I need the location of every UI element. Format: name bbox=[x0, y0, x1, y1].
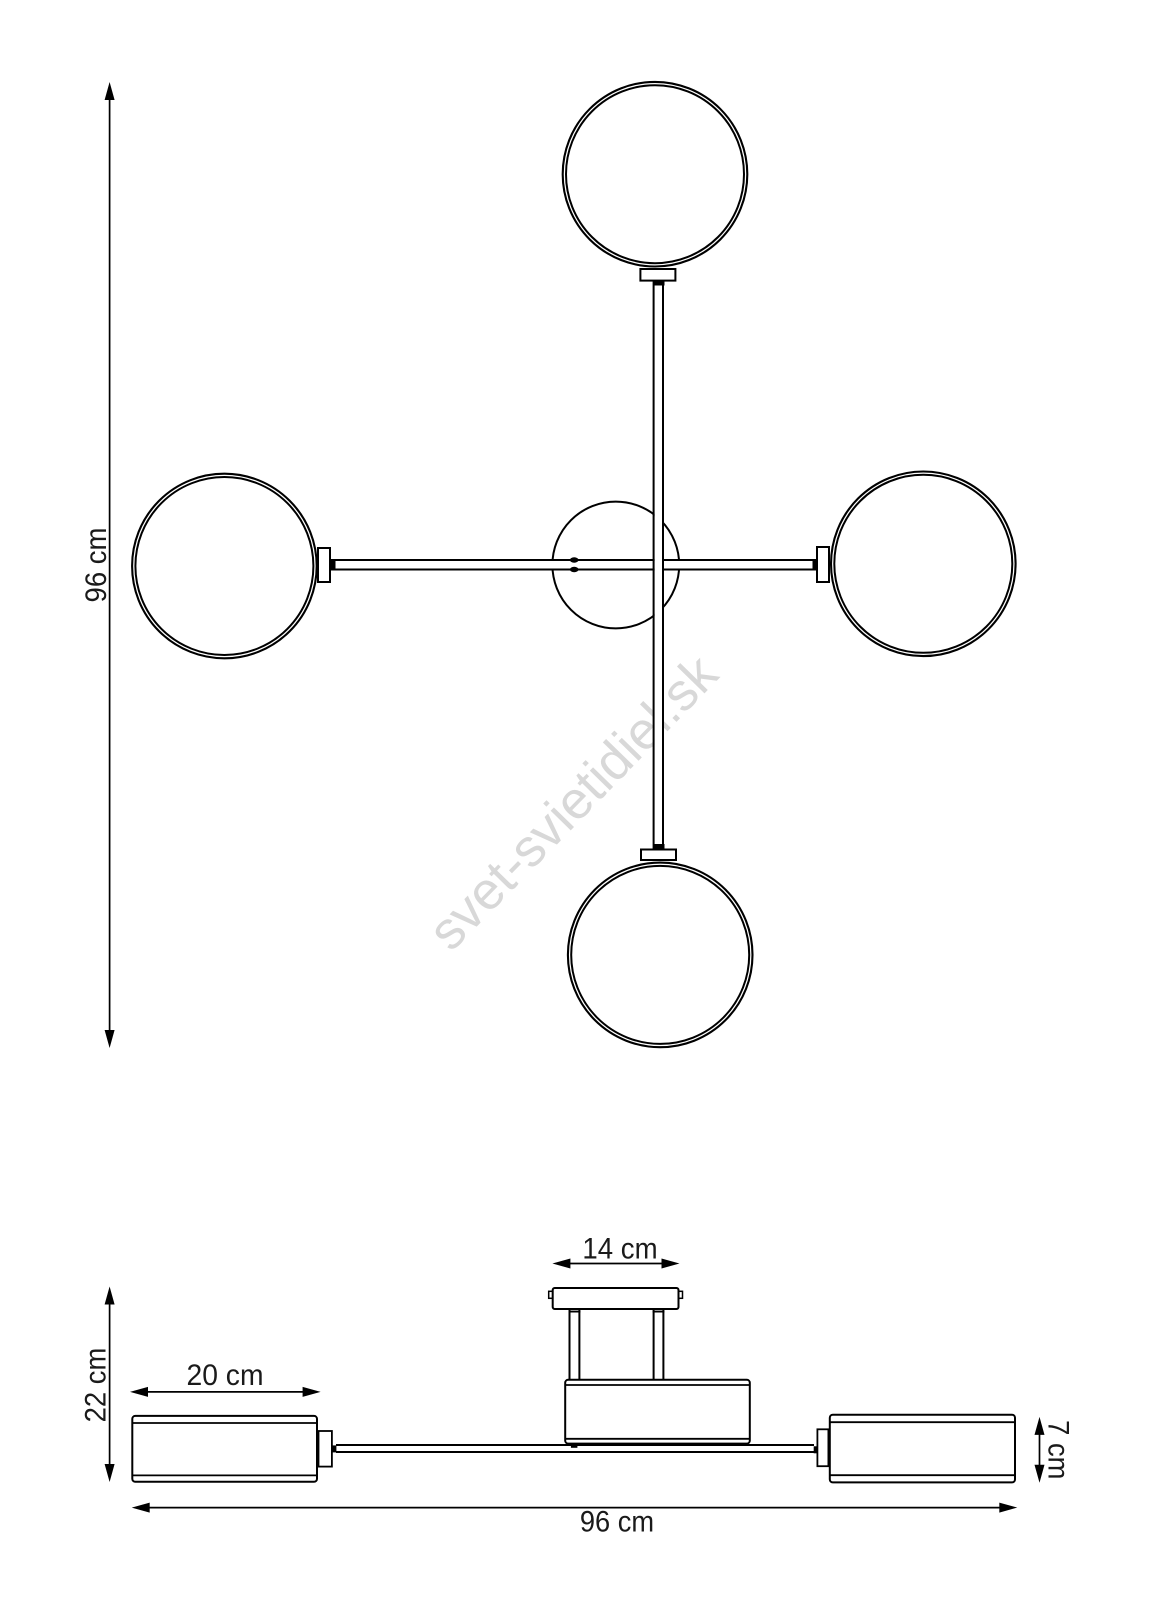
svg-text:22 cm: 22 cm bbox=[80, 1348, 113, 1423]
svg-text:20 cm: 20 cm bbox=[187, 1359, 264, 1392]
svg-text:14 cm: 14 cm bbox=[582, 1233, 657, 1266]
svg-text:96 cm: 96 cm bbox=[80, 528, 113, 603]
svg-text:7 cm: 7 cm bbox=[1042, 1420, 1075, 1479]
svg-text:96 cm: 96 cm bbox=[580, 1506, 654, 1539]
